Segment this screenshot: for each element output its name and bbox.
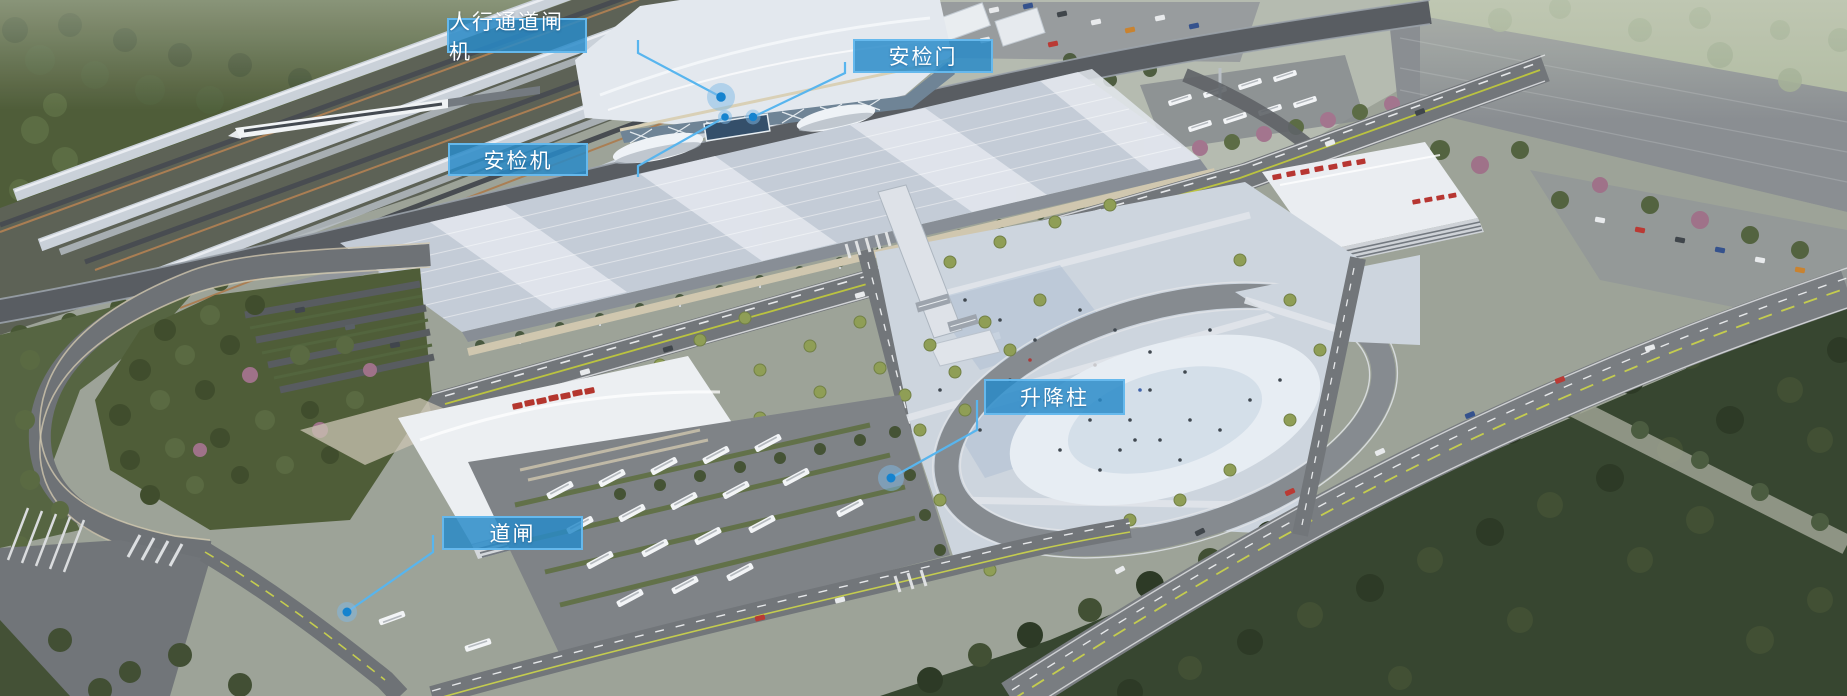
station-aerial-diagram: 人行通道闸机 安检门 安检机 升降柱 道闸 <box>0 0 1847 696</box>
callout-barrier-gate[interactable]: 道闸 <box>442 516 583 550</box>
callout-security-door-label: 安检门 <box>889 41 958 71</box>
callout-pedestrian-gate-label: 人行通道闸机 <box>449 6 585 66</box>
callout-pedestrian-gate[interactable]: 人行通道闸机 <box>447 18 587 53</box>
callout-security-scanner[interactable]: 安检机 <box>448 143 588 176</box>
scene-render <box>0 0 1847 696</box>
callout-lift-bollard-label: 升降柱 <box>1020 382 1089 412</box>
callout-security-scanner-label: 安检机 <box>484 145 553 175</box>
callout-lift-bollard[interactable]: 升降柱 <box>984 379 1125 415</box>
callout-barrier-gate-label: 道闸 <box>490 518 536 548</box>
haze-overlay <box>0 0 1847 696</box>
callout-security-door[interactable]: 安检门 <box>853 39 993 73</box>
